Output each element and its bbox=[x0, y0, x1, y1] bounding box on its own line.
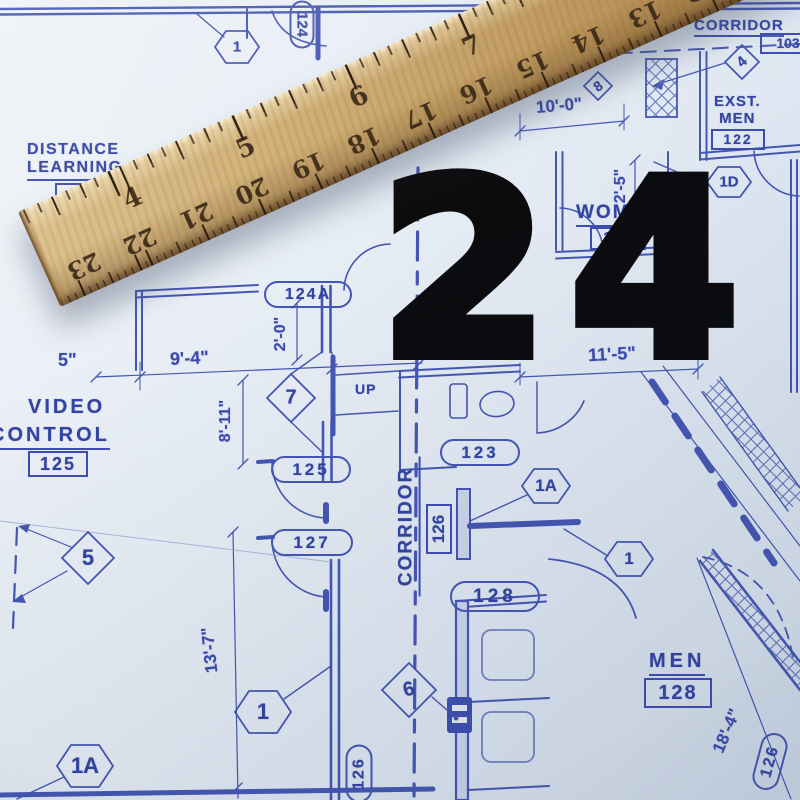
door-tag-127: 127 bbox=[271, 529, 353, 556]
marker-diamond-5: 5 bbox=[82, 545, 94, 571]
door-tag-124: 124 bbox=[290, 1, 315, 49]
door-arc-128 bbox=[549, 559, 636, 618]
room-label-control: CONTROL bbox=[0, 424, 110, 450]
toilet-stall bbox=[482, 712, 534, 762]
room-label-exst-men: EXST. MEN bbox=[714, 93, 761, 131]
door-tag-126-left: 126 bbox=[346, 745, 373, 800]
dimension-5: 5" bbox=[58, 350, 77, 371]
room-number-126: 126 bbox=[426, 504, 452, 554]
marker-hex-1-mid: 1 bbox=[624, 549, 633, 569]
door-tag-128: 128 bbox=[450, 581, 540, 612]
marker-hex-1-bottom: 1 bbox=[257, 699, 269, 725]
overlay-number: 24 bbox=[380, 150, 761, 392]
door-tag-123: 123 bbox=[440, 439, 520, 466]
marker-hex-1a-bottom: 1A bbox=[71, 753, 99, 779]
dimension-8-11: 8'-11" bbox=[217, 388, 235, 454]
blueprint-photo: DISTANCE LEARNING 12 VIDEO CONTROL 125 C… bbox=[0, 0, 800, 800]
room-label-line: MEN bbox=[719, 110, 755, 130]
room-label-men: MEN bbox=[649, 650, 705, 676]
room-label-corridor-center: CORRIDOR bbox=[396, 456, 421, 596]
room-number-128: 128 bbox=[644, 678, 712, 708]
toilet-stall bbox=[482, 630, 534, 680]
room-label-video: VIDEO bbox=[28, 396, 105, 419]
room-number-125: 125 bbox=[28, 451, 88, 477]
room-number-103: 103 bbox=[760, 33, 800, 54]
door-tag-125: 125 bbox=[271, 456, 351, 483]
dimension-2-0: 2'-0" bbox=[272, 307, 290, 361]
marker-diamond-7: 7 bbox=[285, 387, 296, 410]
room-label-line: EXST. bbox=[714, 93, 761, 110]
room-label-line: DISTANCE bbox=[27, 141, 123, 159]
stair-up-label: UP bbox=[355, 381, 376, 397]
hatched-column bbox=[646, 59, 677, 117]
dimension-9-4: 9'-4" bbox=[169, 347, 209, 370]
marker-hex-1-top: 1 bbox=[233, 39, 241, 56]
door-tag-124a: 124A bbox=[264, 281, 352, 308]
marker-hex-1a-mid: 1A bbox=[535, 476, 557, 496]
dimension-10-0: 10'-0" bbox=[535, 94, 583, 118]
